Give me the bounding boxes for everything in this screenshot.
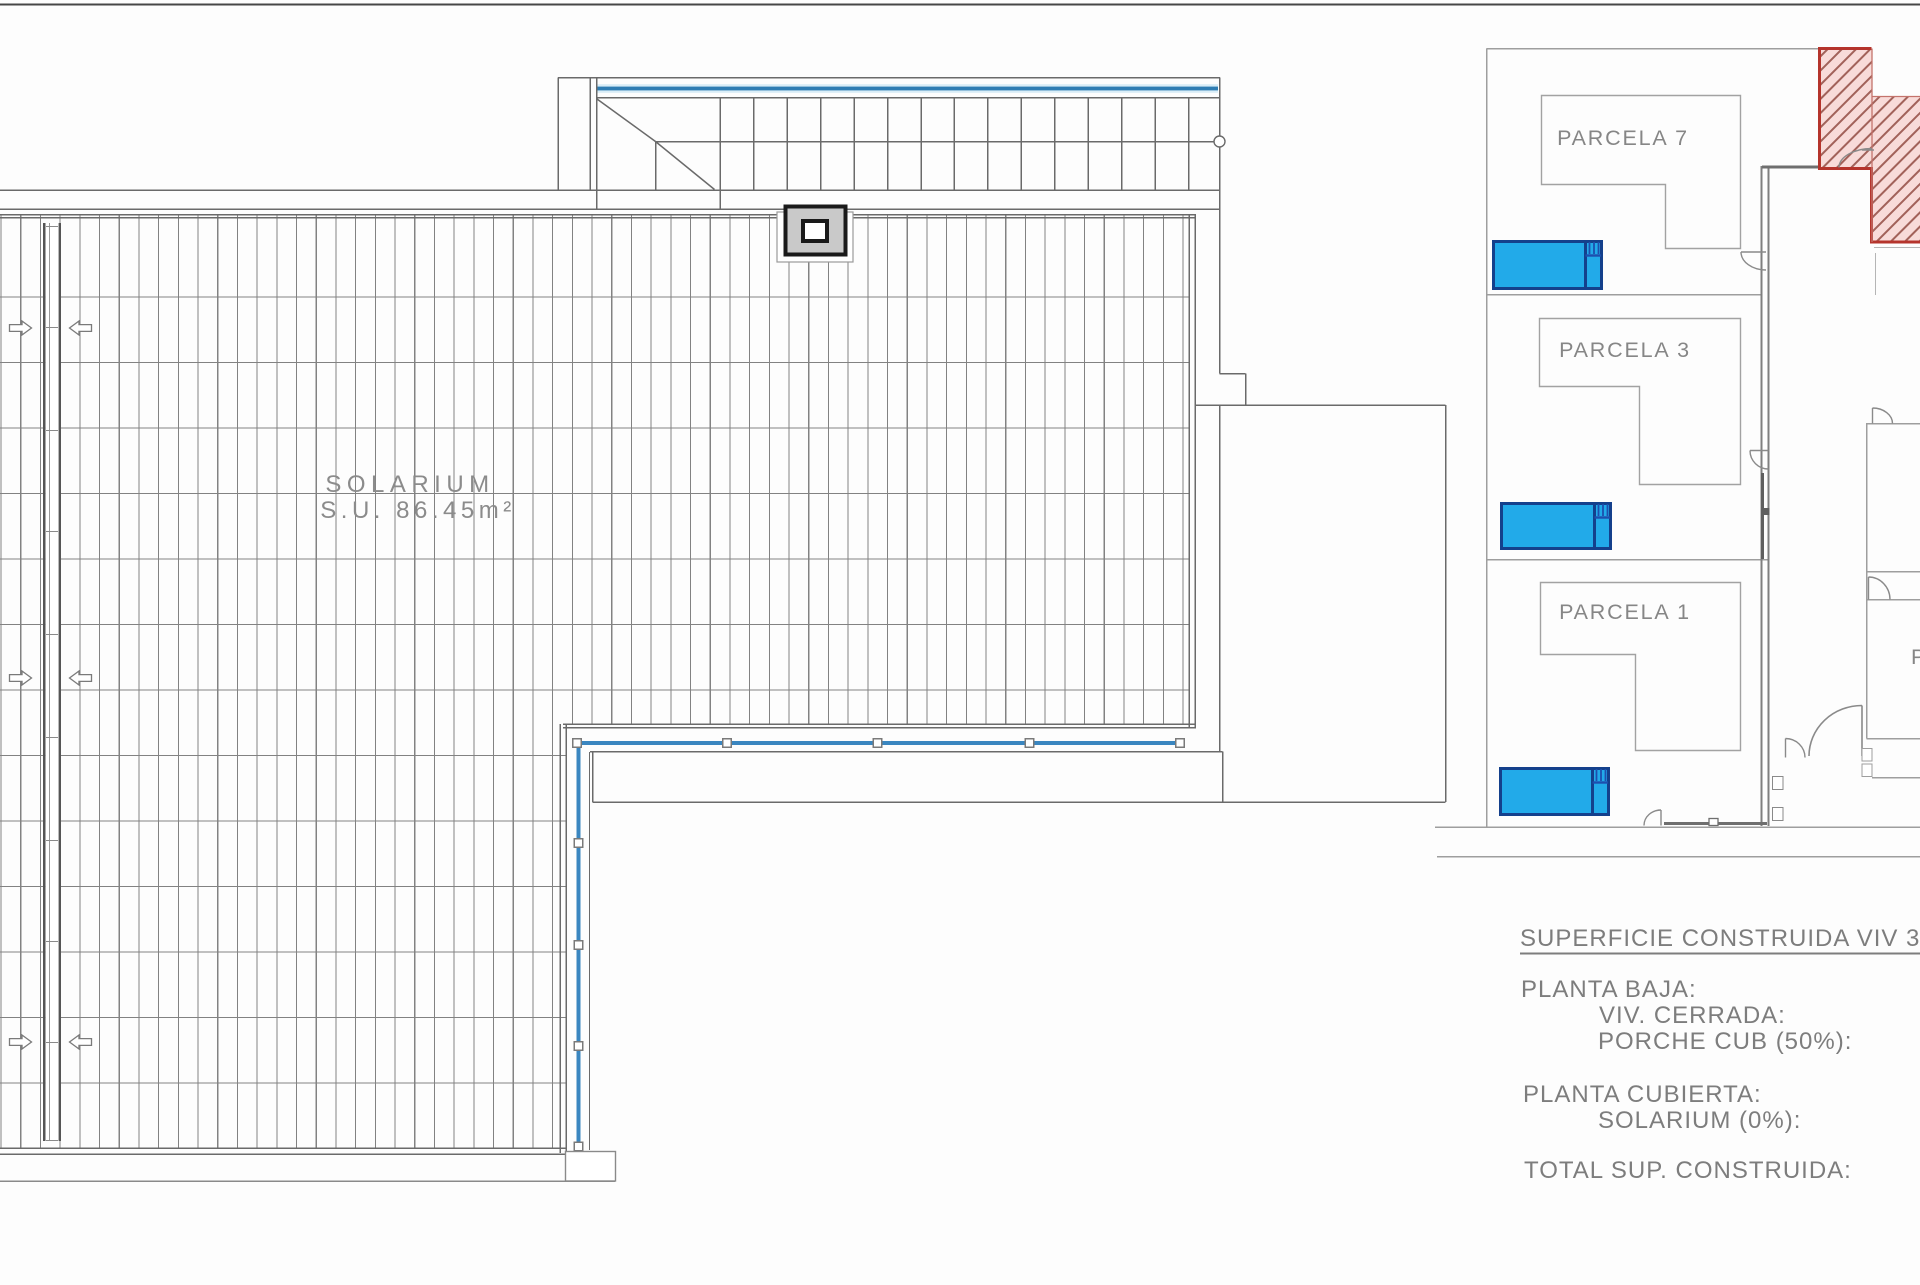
svg-text:S.U. 86.45m²: S.U. 86.45m² [320,497,515,524]
svg-text:SOLARIUM (0%):: SOLARIUM (0%): [1598,1107,1801,1134]
svg-text:SUPERFICIE CONSTRUIDA VIV 3: SUPERFICIE CONSTRUIDA VIV 3 [1520,925,1920,952]
svg-text:PARCELA 3: PARCELA 3 [1559,338,1691,362]
svg-text:P: P [1911,645,1920,669]
svg-text:PORCHE CUB (50%):: PORCHE CUB (50%): [1598,1028,1852,1055]
svg-text:PLANTA CUBIERTA:: PLANTA CUBIERTA: [1523,1081,1762,1108]
svg-text:PARCELA 1: PARCELA 1 [1559,600,1691,624]
svg-text:VIV. CERRADA:: VIV. CERRADA: [1599,1002,1786,1029]
svg-text:PLANTA BAJA:: PLANTA BAJA: [1521,976,1697,1003]
svg-text:PARCELA 7: PARCELA 7 [1557,126,1689,150]
svg-text:SOLARIUM: SOLARIUM [325,471,494,498]
svg-text:TOTAL SUP. CONSTRUIDA:: TOTAL SUP. CONSTRUIDA: [1524,1157,1852,1184]
